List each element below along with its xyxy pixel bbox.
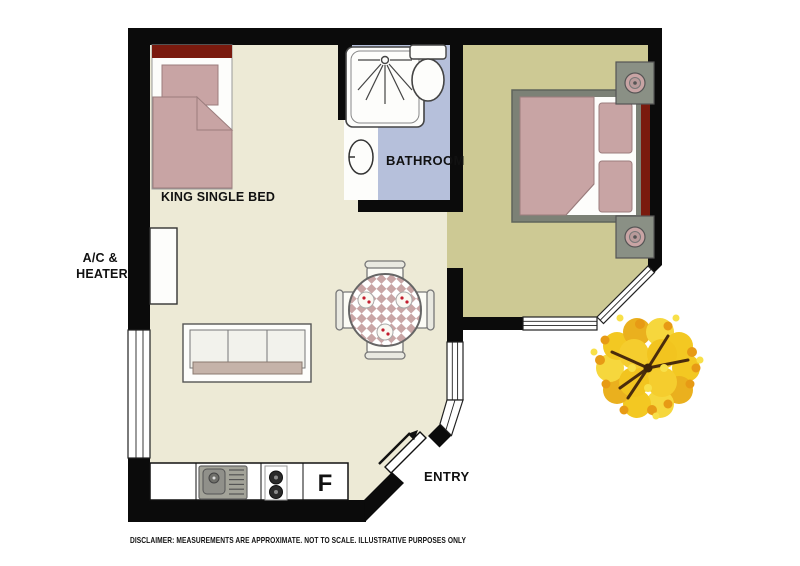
window-east-vertical [447,342,463,400]
wall-mainroom-east [447,268,463,342]
double-bed-pillow-top [599,103,632,153]
fridge-label: F [318,470,333,497]
wall-bathroom-bottom [358,200,463,212]
bathroom-label: BATHROOM [386,153,465,168]
single-bed-headboard [152,45,232,58]
king-single-bed-icon [152,45,232,189]
doorway-floor-strip [447,212,463,268]
double-bed-pillow-bottom [599,161,632,212]
sink-icon [349,140,373,174]
window-left [128,330,150,458]
toilet-icon [410,45,446,101]
wall-bathroom-bedroom [450,45,463,212]
sofa-icon [183,324,311,382]
double-bed-headboard [641,90,650,222]
window-bedroom-bottom [523,317,597,330]
stove-icon [265,466,287,500]
double-bed-icon [512,90,650,222]
ac-heater-label: A/C & HEATER [76,251,128,281]
kitchen-sink-icon [199,466,247,499]
king-single-bed-label: KING SINGLE BED [161,190,275,204]
floor-plan-canvas: F [0,0,800,566]
wall-bedroom-bottom [463,317,523,330]
wall-left-upper [128,28,150,330]
wall-bottom [128,500,366,522]
floor-plan: F [0,0,800,566]
entry-label: ENTRY [424,469,470,484]
wall-top [128,28,662,45]
disclaimer-text: DISCLAIMER: MEASUREMENTS ARE APPROXIMATE… [130,535,466,545]
kitchen-counter: F [150,463,348,500]
nightstand-lamp-icon [616,216,654,258]
ac-heater-unit-icon [150,228,177,304]
nightstand-lamp-icon [616,62,654,104]
tree-icon [591,315,704,420]
